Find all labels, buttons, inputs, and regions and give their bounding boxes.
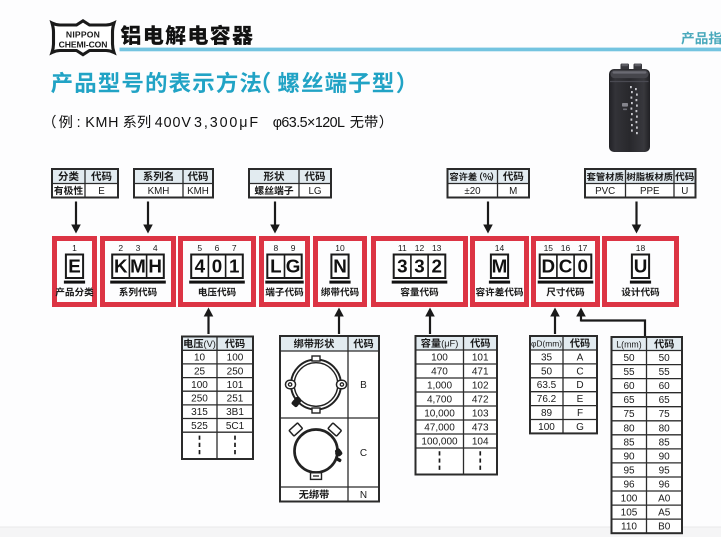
svg-text:50: 50 — [541, 366, 553, 377]
svg-text:100: 100 — [191, 380, 208, 391]
svg-text:102: 102 — [472, 381, 489, 392]
svg-text:15: 15 — [544, 243, 554, 253]
svg-text:47,000: 47,000 — [424, 423, 455, 434]
svg-text:12: 12 — [415, 243, 425, 253]
svg-text:95: 95 — [659, 465, 671, 476]
svg-text:4,700: 4,700 — [427, 395, 452, 406]
svg-text:L(mm): L(mm) — [616, 339, 641, 349]
svg-text:0: 0 — [577, 256, 587, 277]
svg-text:60: 60 — [623, 381, 635, 392]
svg-text:18: 18 — [636, 243, 646, 253]
svg-text:400V: 400V — [155, 115, 192, 131]
svg-text:100: 100 — [431, 353, 448, 364]
svg-text:103: 103 — [472, 409, 489, 420]
svg-text:2: 2 — [118, 243, 123, 253]
svg-text:63.5: 63.5 — [537, 380, 557, 391]
svg-text:100: 100 — [621, 494, 638, 505]
svg-text:C: C — [360, 448, 367, 459]
svg-text:NIPPON: NIPPON — [66, 30, 100, 40]
svg-text:±20: ±20 — [464, 186, 481, 197]
svg-text:D: D — [542, 256, 556, 277]
svg-text:315: 315 — [191, 407, 208, 418]
svg-text:16: 16 — [561, 243, 571, 253]
svg-text:F: F — [577, 408, 583, 419]
svg-text:1,000: 1,000 — [427, 381, 452, 392]
svg-text:95: 95 — [623, 465, 635, 476]
svg-text:35: 35 — [541, 352, 553, 363]
svg-text:A5: A5 — [658, 508, 671, 519]
svg-text:14: 14 — [495, 243, 505, 253]
svg-text:50: 50 — [659, 353, 671, 364]
svg-text:85: 85 — [623, 437, 635, 448]
svg-text:M: M — [492, 256, 508, 277]
svg-text:2: 2 — [431, 256, 441, 277]
svg-text:76.2: 76.2 — [537, 394, 557, 405]
svg-text:C: C — [576, 366, 583, 377]
svg-text:100: 100 — [227, 353, 244, 364]
svg-text:96: 96 — [659, 480, 671, 491]
svg-text:A0: A0 — [658, 494, 671, 505]
svg-text:250: 250 — [227, 366, 244, 377]
svg-text:75: 75 — [623, 409, 635, 420]
svg-text:D: D — [576, 380, 583, 391]
svg-text:B: B — [360, 380, 367, 391]
svg-text:H: H — [148, 256, 162, 277]
svg-text:89: 89 — [541, 408, 553, 419]
svg-text:KMH: KMH — [187, 186, 209, 197]
svg-text:17: 17 — [578, 243, 588, 253]
svg-text:KMH: KMH — [85, 115, 119, 131]
svg-text:G: G — [576, 422, 584, 433]
svg-text:M: M — [130, 256, 146, 277]
svg-text:10: 10 — [335, 243, 345, 253]
svg-text:L: L — [270, 256, 281, 277]
svg-text:N: N — [333, 256, 347, 277]
svg-text:4: 4 — [195, 256, 206, 277]
svg-text:251: 251 — [227, 394, 244, 405]
svg-text:55: 55 — [623, 367, 635, 378]
svg-text:0: 0 — [212, 256, 222, 277]
svg-text:100: 100 — [538, 422, 555, 433]
svg-text:96: 96 — [623, 480, 635, 491]
svg-text:472: 472 — [472, 395, 489, 406]
svg-text:M: M — [509, 186, 517, 197]
svg-text:4: 4 — [153, 243, 158, 253]
svg-text:PPE: PPE — [640, 186, 660, 197]
svg-text:U: U — [681, 186, 688, 197]
svg-text:E: E — [98, 186, 105, 197]
svg-text:8: 8 — [274, 243, 279, 253]
svg-text:250: 250 — [191, 394, 208, 405]
svg-text:C: C — [559, 256, 573, 277]
svg-text:80: 80 — [623, 423, 635, 434]
svg-text:E: E — [68, 256, 81, 277]
svg-text:A: A — [577, 352, 584, 363]
svg-text:525: 525 — [191, 421, 208, 432]
svg-text:101: 101 — [227, 380, 244, 391]
svg-text::: : — [77, 115, 81, 131]
svg-text:1: 1 — [229, 256, 239, 277]
svg-text:60: 60 — [659, 381, 671, 392]
svg-text:104: 104 — [472, 437, 489, 448]
svg-text:11: 11 — [398, 243, 407, 253]
svg-text:100,000: 100,000 — [421, 437, 458, 448]
svg-text:φD(mm): φD(mm) — [531, 339, 562, 349]
svg-text:KMH: KMH — [148, 186, 170, 197]
svg-text:K: K — [114, 256, 128, 277]
svg-text:3B1: 3B1 — [226, 407, 244, 418]
svg-text:PVC: PVC — [595, 186, 615, 197]
svg-text:(μF): (μF) — [441, 339, 458, 349]
svg-text:7: 7 — [232, 243, 237, 253]
svg-text:471: 471 — [472, 367, 489, 378]
svg-text:65: 65 — [659, 395, 671, 406]
svg-text:50: 50 — [623, 353, 635, 364]
svg-text:E: E — [577, 394, 584, 405]
svg-text:N: N — [360, 490, 367, 501]
svg-text:LG: LG — [308, 186, 321, 197]
svg-text:470: 470 — [431, 367, 448, 378]
svg-text:CHEMI-CON: CHEMI-CON — [59, 40, 108, 50]
svg-text:105: 105 — [621, 508, 638, 519]
svg-text:473: 473 — [472, 423, 489, 434]
svg-text:φ63.5×120L: φ63.5×120L — [273, 115, 345, 131]
svg-text:(V): (V) — [204, 339, 216, 349]
svg-text:G: G — [286, 256, 301, 277]
svg-text:5: 5 — [197, 243, 202, 253]
svg-text:10: 10 — [194, 353, 206, 364]
svg-text:3: 3 — [136, 243, 141, 253]
svg-text:B0: B0 — [658, 522, 671, 533]
svg-text:3: 3 — [414, 256, 424, 277]
svg-text:3: 3 — [397, 256, 407, 277]
svg-text:80: 80 — [659, 423, 671, 434]
svg-text:55: 55 — [659, 367, 671, 378]
svg-text:90: 90 — [659, 451, 671, 462]
svg-text:9: 9 — [291, 243, 296, 253]
svg-text:U: U — [634, 256, 648, 277]
svg-text:13: 13 — [432, 243, 442, 253]
svg-text:25: 25 — [194, 366, 206, 377]
svg-text:110: 110 — [621, 522, 637, 533]
svg-text:65: 65 — [623, 395, 635, 406]
svg-text:6: 6 — [215, 243, 220, 253]
svg-text:10,000: 10,000 — [424, 409, 455, 420]
svg-text:3,300μF: 3,300μF — [194, 115, 260, 131]
svg-text:5C1: 5C1 — [226, 421, 245, 432]
svg-text:75: 75 — [659, 409, 671, 420]
svg-text:85: 85 — [659, 437, 671, 448]
svg-text:1: 1 — [72, 243, 77, 253]
svg-text:101: 101 — [472, 353, 489, 364]
svg-text:90: 90 — [623, 451, 635, 462]
